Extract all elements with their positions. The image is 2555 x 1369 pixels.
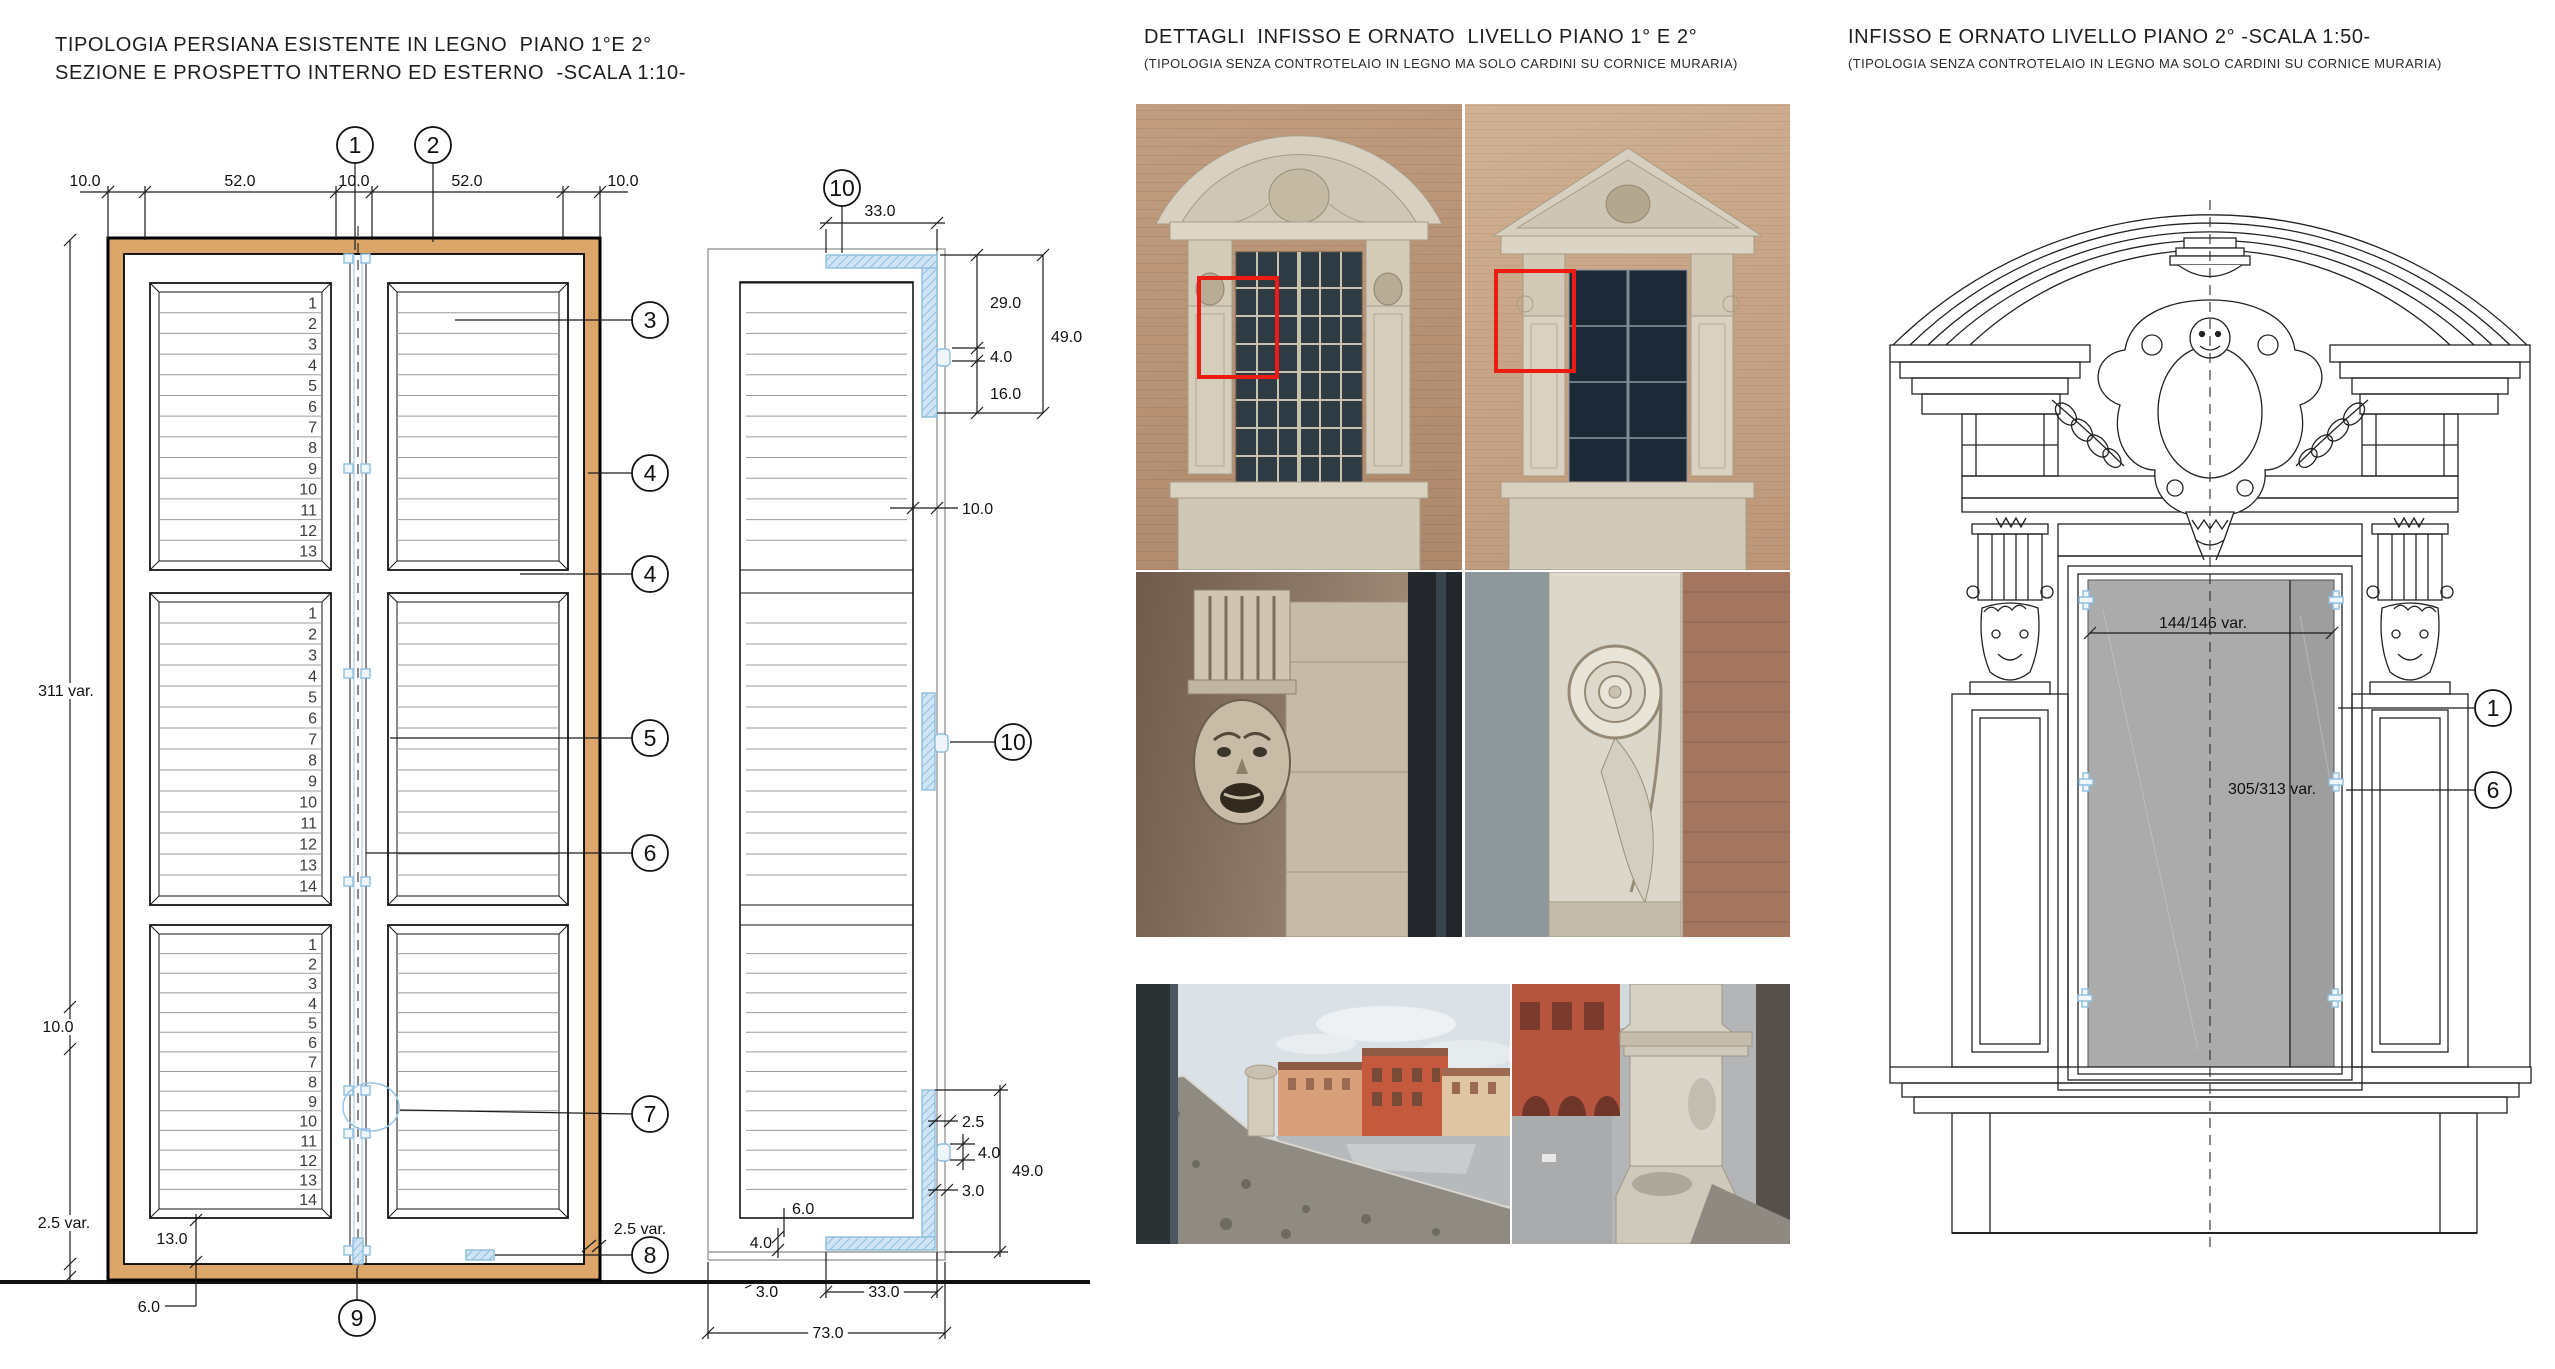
dim-label: 305/313 var. — [2228, 781, 2316, 798]
dim-label: 6.0 — [792, 1201, 814, 1218]
dim-label: 4.0 — [750, 1235, 772, 1252]
shutter-elevation: 1234567891011121312345678910111213141234… — [108, 226, 600, 1280]
hinge-symbol — [2328, 995, 2342, 1001]
shutter-section — [708, 249, 950, 1260]
dim-label: 3.0 — [962, 1183, 984, 1200]
dim-label: 16.0 — [990, 386, 1021, 403]
slat-number: 12 — [299, 523, 317, 540]
slat-number: 2 — [308, 316, 317, 333]
corbel-mask-graphic — [1136, 572, 1462, 937]
middle-subtitle: (TIPOLOGIA SENZA CONTROTELAIO IN LEGNO M… — [1144, 56, 1738, 71]
marker-number: 4 — [644, 561, 657, 587]
photo-sill-piazza-view — [1136, 984, 1510, 1244]
middle-title: DETTAGLI INFISSO E ORNATO LIVELLO PIANO … — [1144, 26, 1697, 49]
hinge-symbol — [2083, 773, 2089, 791]
dim-label: 144/146 var. — [2159, 615, 2247, 632]
dim-label: 10.0 — [962, 501, 993, 518]
marker-number: 4 — [644, 460, 657, 486]
slat-number: 13 — [299, 544, 317, 561]
photo-window-floor1 — [1136, 104, 1462, 570]
slat-number: 10 — [299, 1114, 317, 1131]
slat-number: 10 — [299, 795, 317, 812]
hinge-plate — [344, 464, 353, 473]
dim-label: 10.0 — [607, 173, 638, 190]
photo-corbel-mask-detail — [1136, 572, 1462, 937]
marker-number: 1 — [2487, 695, 2500, 721]
slat-number: 2 — [308, 956, 317, 973]
slat-number: 11 — [300, 816, 317, 833]
dim-label: 2.5 var. — [614, 1221, 666, 1238]
marker-number: 7 — [644, 1101, 657, 1127]
dim-label: 10.0 — [338, 173, 369, 190]
marker-number: 9 — [351, 1305, 364, 1331]
slat-number: 4 — [308, 357, 317, 374]
marker-number: 5 — [644, 725, 657, 751]
hinge-plate — [361, 669, 370, 678]
slat-number: 6 — [308, 1035, 317, 1052]
marker-number: 6 — [2487, 777, 2500, 803]
hinge-plate — [344, 669, 353, 678]
slat-number: 7 — [308, 420, 317, 437]
hinge-symbol — [2333, 773, 2339, 791]
dim-label: 4.0 — [990, 349, 1012, 366]
slat-number: 3 — [308, 337, 317, 354]
marker-circle — [2475, 772, 2511, 808]
slat-number: 6 — [308, 399, 317, 416]
slat-number: 11 — [300, 502, 317, 519]
slat-number: 2 — [308, 627, 317, 644]
hinge-symbol — [2079, 597, 2093, 603]
slat-number: 4 — [308, 996, 317, 1013]
slat-number: 1 — [308, 937, 317, 954]
dim-label: 311 var. — [38, 683, 94, 700]
dim-label: 49.0 — [1051, 329, 1082, 346]
dim-label: 13.0 — [156, 1231, 187, 1248]
dim-label: 6.0 — [138, 1299, 160, 1316]
dim-label: 2.5 var. — [38, 1215, 90, 1232]
slat-number: 6 — [308, 711, 317, 728]
dim-label: 2.5 — [962, 1114, 984, 1131]
slat-number: 7 — [308, 1055, 317, 1072]
dim-label: 29.0 — [990, 295, 1021, 312]
slat-number: 8 — [308, 753, 317, 770]
pillar-graphic — [1512, 984, 1790, 1244]
drawing-sheet: TIPOLOGIA PERSIANA ESISTENTE IN LEGNO PI… — [0, 0, 2555, 1369]
hinge-plate — [361, 464, 370, 473]
dim-label: 4.0 — [978, 1145, 1000, 1162]
hinge-symbol — [2079, 779, 2093, 785]
slat-number: 10 — [299, 482, 317, 499]
photo-pillar-detail — [1512, 984, 1790, 1244]
slat-number: 3 — [308, 648, 317, 665]
marker-circle — [2475, 690, 2511, 726]
marker-number: 3 — [644, 307, 657, 333]
marker-number: 10 — [829, 175, 855, 201]
piazza-view-graphic — [1136, 984, 1510, 1244]
slat-number: 12 — [299, 837, 317, 854]
slat-number: 3 — [308, 976, 317, 993]
slat-number: 1 — [308, 606, 317, 623]
hinge-plate — [344, 1129, 353, 1138]
hinge-symbol — [2078, 995, 2092, 1001]
right-subtitle: (TIPOLOGIA SENZA CONTROTELAIO IN LEGNO M… — [1848, 56, 2442, 71]
shutter-drawings: 1234567891011121312345678910111213141234… — [0, 0, 1100, 1369]
hinge-symbol — [2329, 597, 2343, 603]
hinge-symbol — [2083, 591, 2089, 609]
slat-number: 5 — [308, 690, 317, 707]
right-title: INFISSO E ORNATO LIVELLO PIANO 2° -SCALA… — [1848, 26, 2371, 49]
highlight-box-corbel-floor1 — [1197, 276, 1279, 379]
marker-number: 10 — [1000, 729, 1026, 755]
window-facade-graphic — [1136, 104, 1462, 570]
dim-label: 73.0 — [812, 1325, 843, 1342]
marker-number: 6 — [644, 840, 657, 866]
hinge-symbol — [2082, 989, 2088, 1007]
hinge-symbol — [2332, 989, 2338, 1007]
hinge-plate — [344, 254, 353, 263]
slat-number: 9 — [308, 1094, 317, 1111]
marker-number: 1 — [349, 132, 362, 158]
hinge-symbol — [2333, 591, 2339, 609]
hinge-plate — [361, 254, 370, 263]
photo-volute-detail — [1465, 572, 1790, 937]
dim-label: 3.0 — [756, 1284, 778, 1301]
slat-number: 1 — [308, 295, 317, 312]
slat-number: 14 — [299, 1192, 317, 1209]
slat-number: 5 — [308, 378, 317, 395]
dim-label: 52.0 — [224, 173, 255, 190]
slat-number: 11 — [300, 1133, 317, 1150]
dim-label: 52.0 — [451, 173, 482, 190]
slat-number: 12 — [299, 1153, 317, 1170]
slat-number: 8 — [308, 440, 317, 457]
marker-number: 8 — [644, 1242, 657, 1268]
slat-number: 9 — [308, 461, 317, 478]
bottom-guide-detail — [466, 1250, 494, 1260]
slat-number: 7 — [308, 732, 317, 749]
slat-number: 13 — [299, 858, 317, 875]
slat-number: 4 — [308, 669, 317, 686]
marker-number: 2 — [427, 132, 440, 158]
slat-number: 9 — [308, 774, 317, 791]
rod-end-detail — [353, 1238, 363, 1264]
dim-label: 33.0 — [868, 1284, 899, 1301]
slat-number: 13 — [299, 1173, 317, 1190]
hinge-plate — [361, 1086, 370, 1095]
hinge-symbol — [2329, 779, 2343, 785]
dim-label: 10.0 — [42, 1019, 73, 1036]
slat-number: 14 — [299, 879, 317, 896]
dim-label: 10.0 — [69, 173, 100, 190]
highlight-box-corbel-floor2 — [1494, 269, 1576, 373]
hinge-plate — [344, 877, 353, 886]
hinge-plate — [361, 877, 370, 886]
slat-number: 8 — [308, 1074, 317, 1091]
slat-number: 5 — [308, 1015, 317, 1032]
hinge-plate — [344, 1246, 353, 1255]
dim-label: 33.0 — [864, 203, 895, 220]
dim-label: 49.0 — [1012, 1163, 1043, 1180]
volute-graphic — [1465, 572, 1790, 937]
